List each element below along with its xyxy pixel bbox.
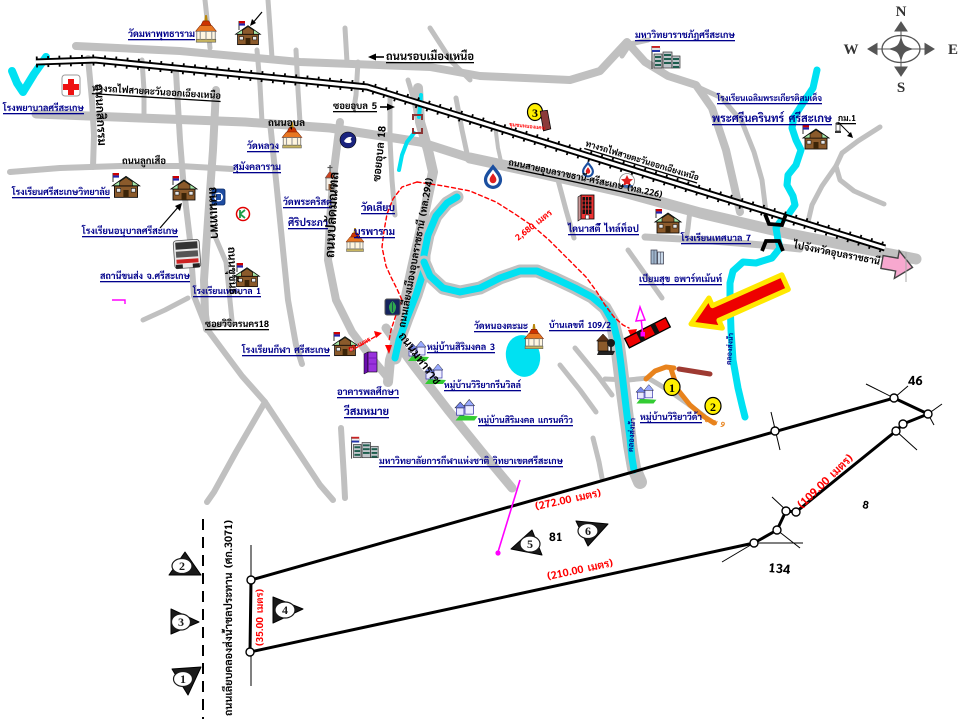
svg-text:4: 4 bbox=[282, 603, 288, 617]
svg-text:1: 1 bbox=[180, 672, 186, 686]
svg-text:W: W bbox=[844, 42, 859, 58]
svg-text:3: 3 bbox=[532, 106, 538, 120]
svg-text:2: 2 bbox=[179, 559, 185, 573]
svg-text:2: 2 bbox=[710, 400, 716, 414]
svg-text:3: 3 bbox=[178, 615, 184, 629]
svg-text:1: 1 bbox=[669, 381, 675, 395]
svg-text:S: S bbox=[897, 80, 905, 96]
svg-text:N: N bbox=[896, 4, 907, 20]
svg-text:E: E bbox=[948, 42, 958, 58]
svg-text:5: 5 bbox=[527, 537, 533, 551]
svg-text:6: 6 bbox=[585, 524, 591, 538]
